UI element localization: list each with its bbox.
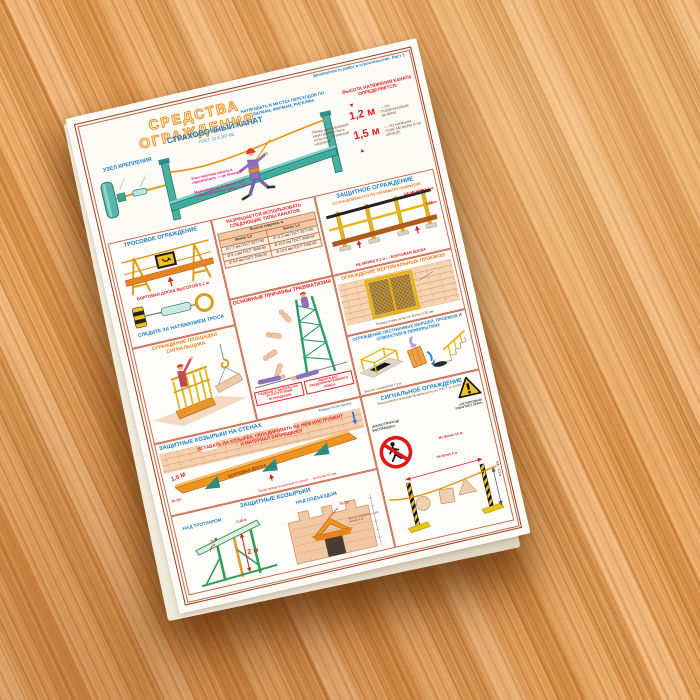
poster-wrap: Безопасность работ в строительстве. Лист… [65,38,530,614]
safety-poster: Безопасность работ в строительстве. Лист… [65,38,530,614]
warning-sign-icon [454,373,482,400]
arrow-up-icon: ▲ [359,147,366,154]
signal-fence-sign-right: «ОСТОРОЖНО! РАБОТАЕТ КРАН» [445,398,484,413]
signal-dim-span: Не более 12 м [413,426,488,447]
height-2: 1,5 м [353,126,381,144]
no-entry-sign-icon [376,432,417,473]
canopy-angle: 70-75° [171,499,182,505]
height-2-desc: — ПО НИЖНИМ ПОЯСАМ ФЕРМ И НА КРОВЛЕ [384,118,424,138]
wood-table-background: Безопасность работ в строительстве. Лист… [0,0,700,700]
height-1-desc: — ПО ПОДКРАНОВЫМ БАЛКАМ [380,98,420,118]
height-heading: ВЫСОТА НАТЯЖЕНИЯ КАНАТА ОПРЕДЕЛЯЕТСЯ: [341,75,413,101]
signal-fence-sign-left: «ВХОД (ПРОХОД) ВОСПРЕЩЕН» [371,418,408,433]
